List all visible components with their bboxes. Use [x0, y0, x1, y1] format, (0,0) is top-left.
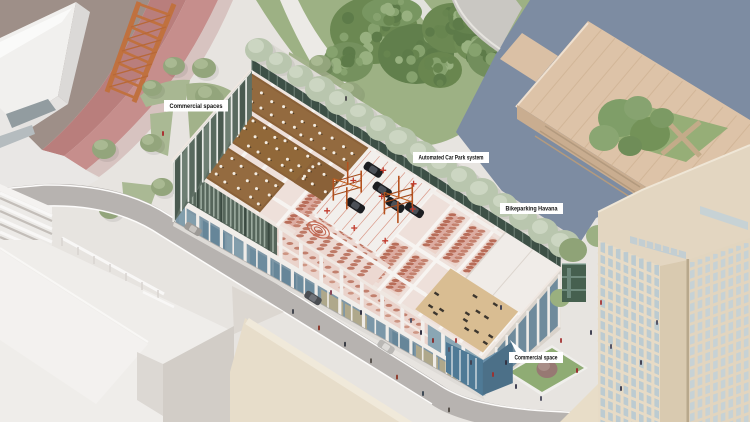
svg-text:Bikeparking Havana: Bikeparking Havana	[506, 207, 559, 213]
svg-text:Automated Car Park system: Automated Car Park system	[419, 156, 484, 162]
svg-text:Commercial space: Commercial space	[515, 356, 559, 362]
svg-text:Commercial spaces: Commercial spaces	[170, 104, 224, 110]
